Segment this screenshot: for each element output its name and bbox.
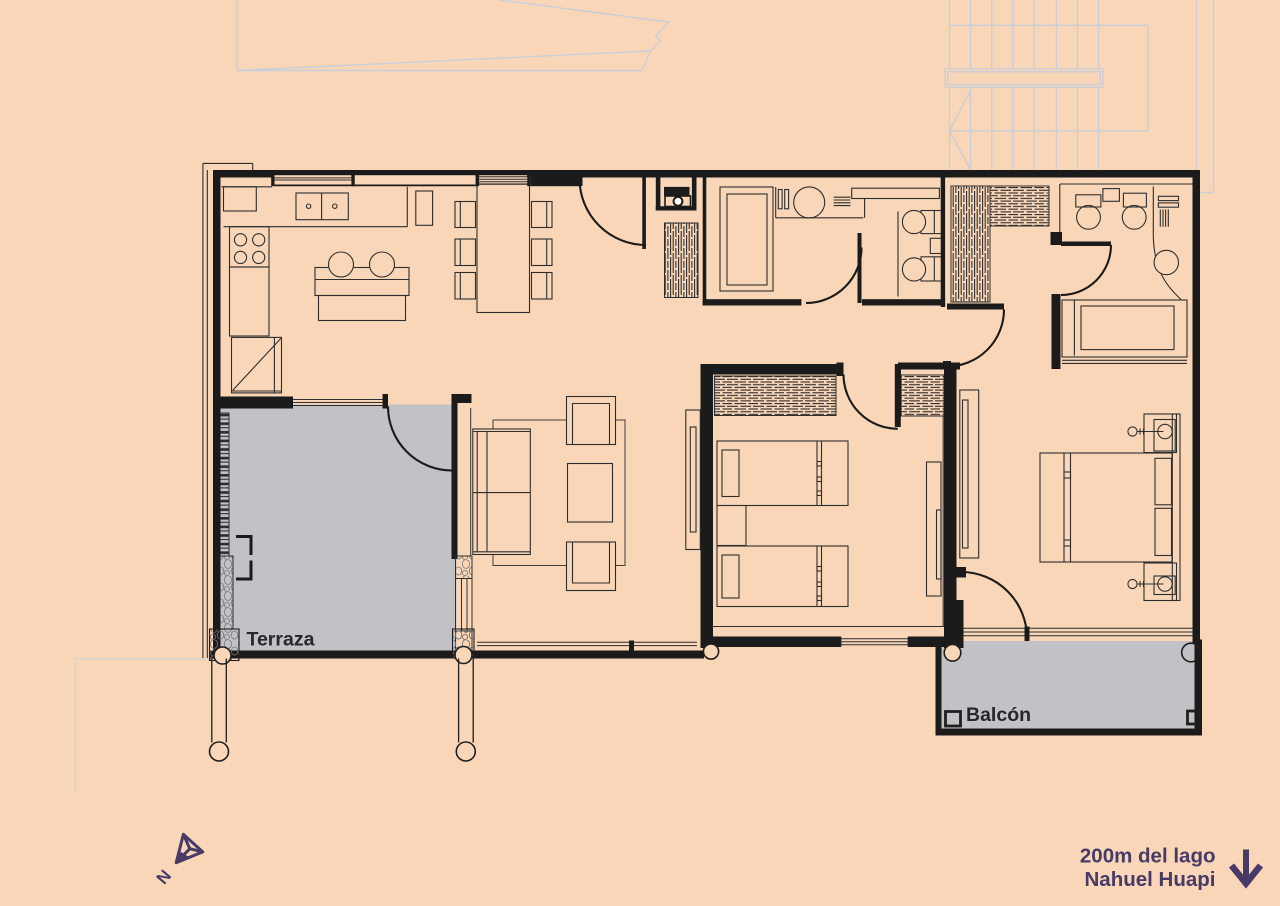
svg-text:Terraza: Terraza (247, 629, 315, 651)
svg-text:Nahuel Huapi: Nahuel Huapi (1085, 868, 1216, 891)
svg-text:Balcón: Balcón (966, 704, 1031, 726)
svg-text:200m del lago: 200m del lago (1080, 845, 1216, 868)
